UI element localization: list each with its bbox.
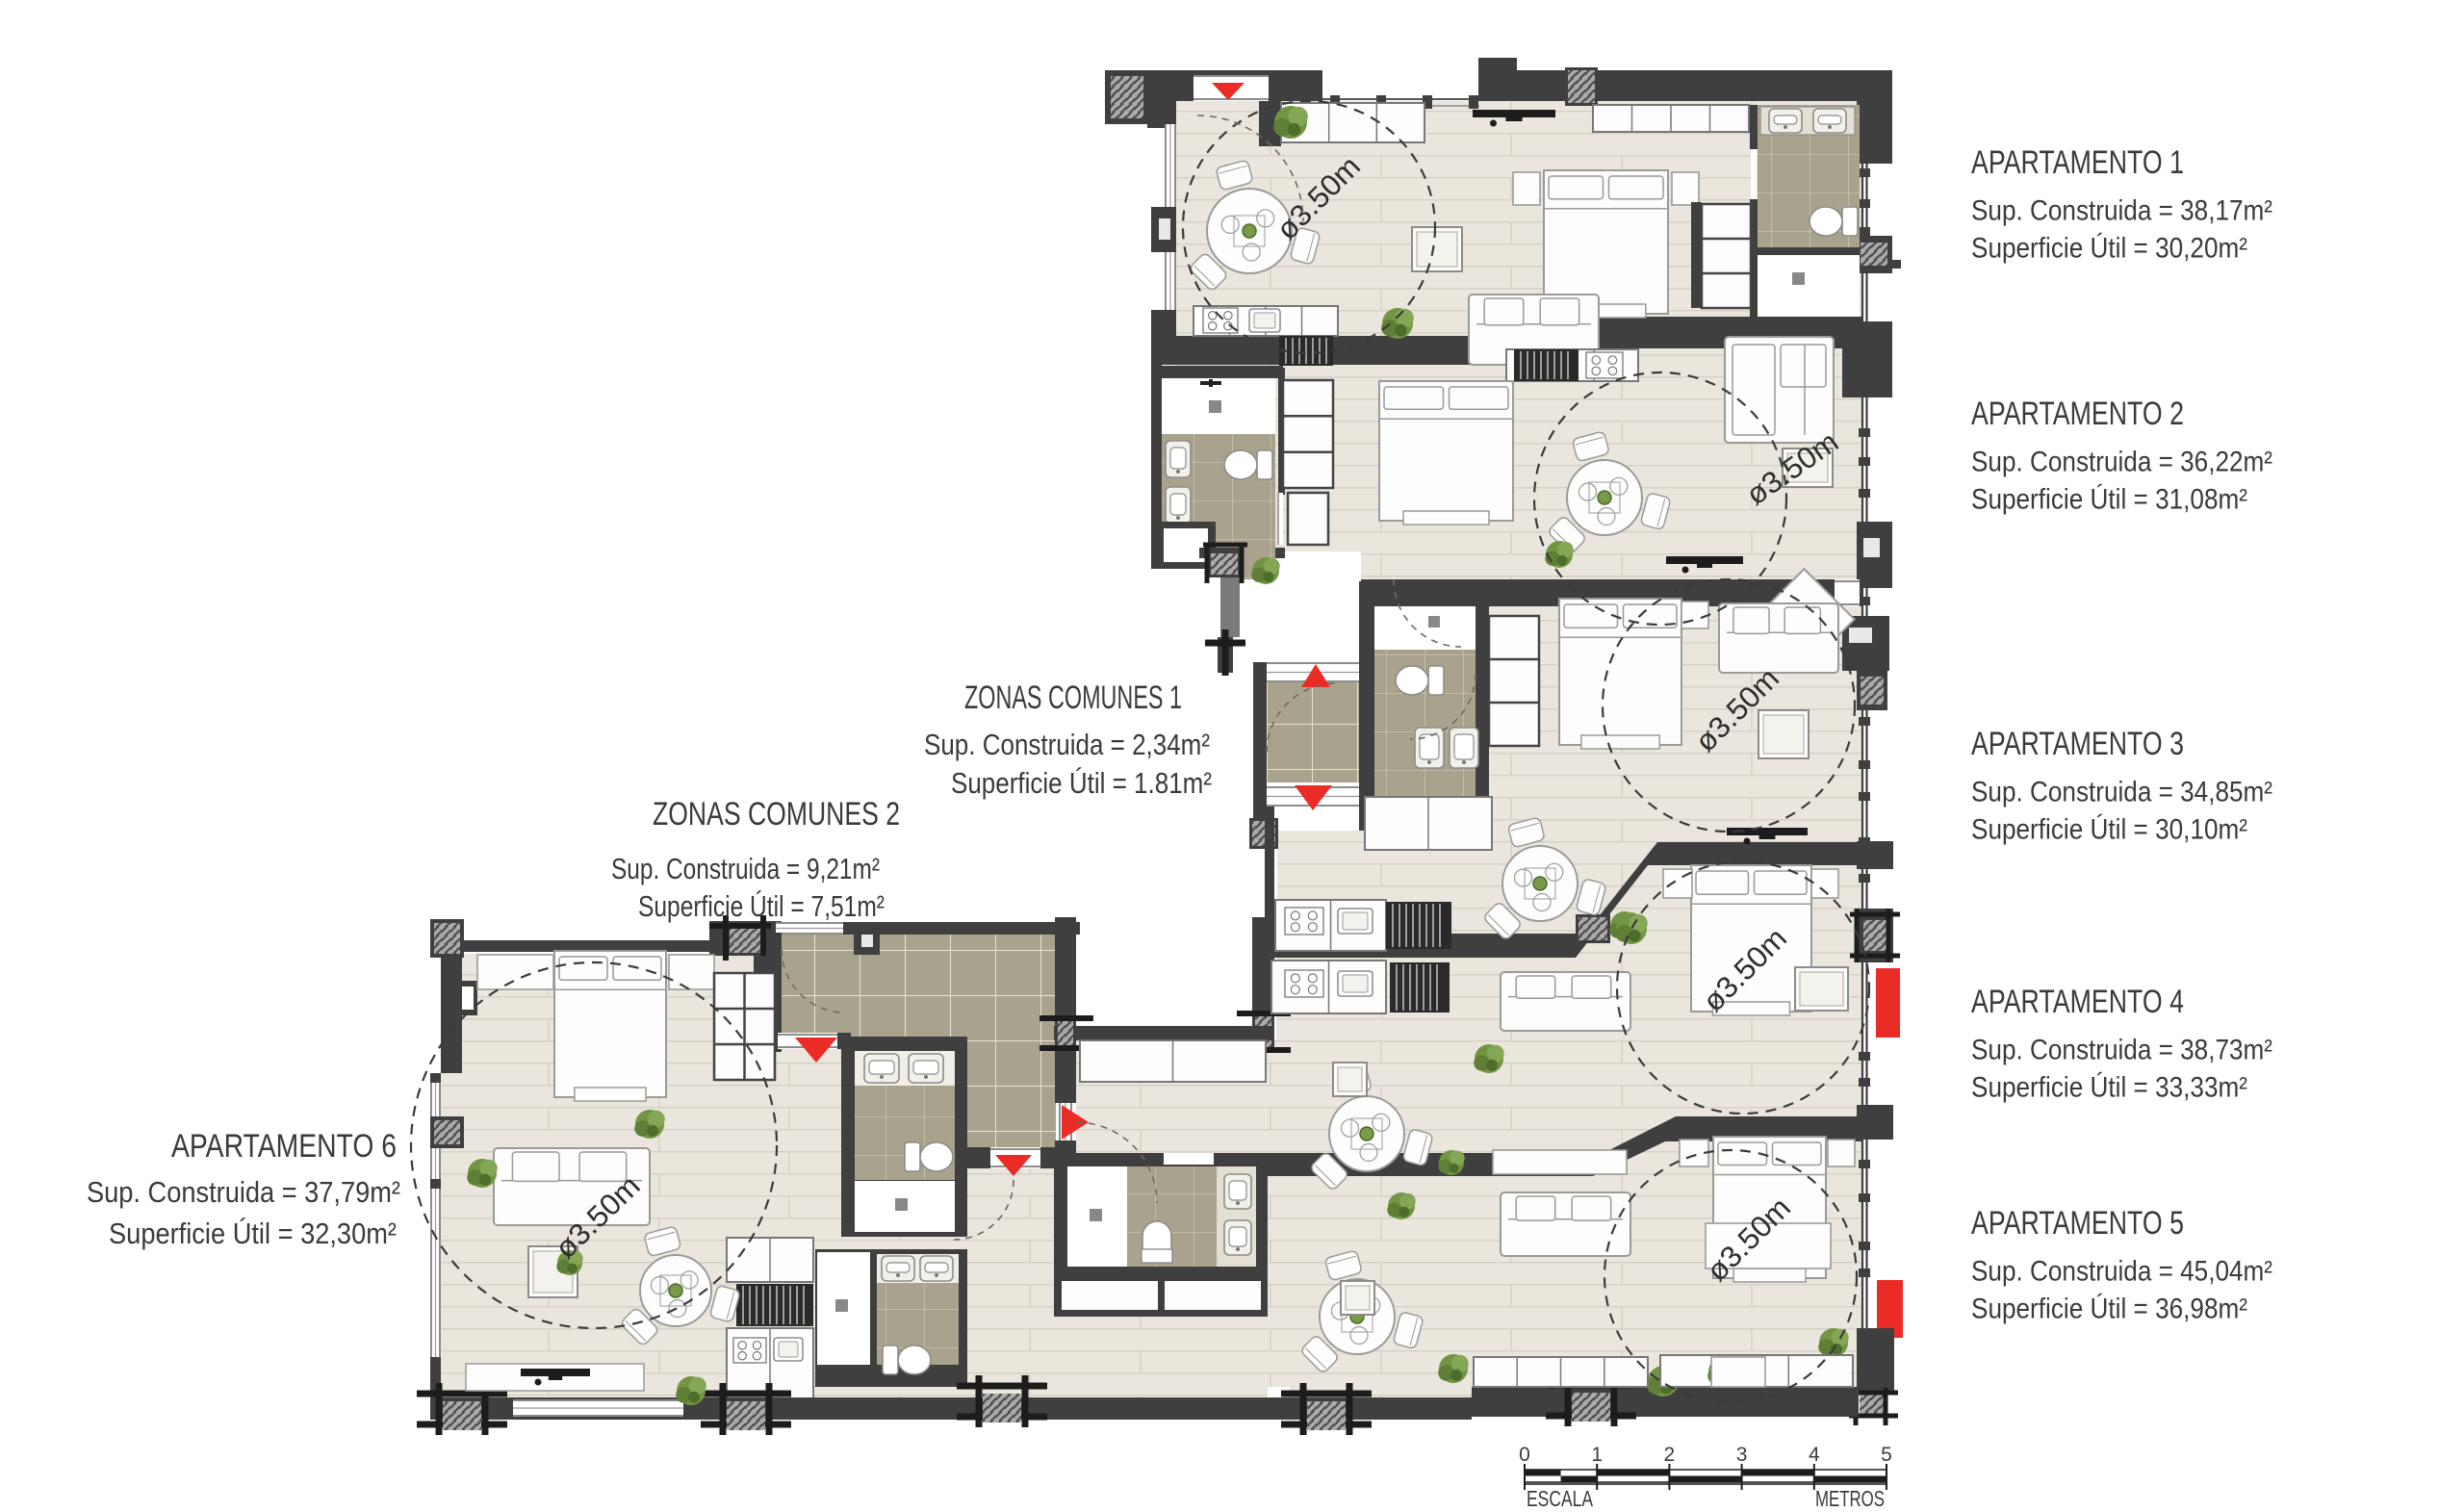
svg-text:3: 3 [1736,1444,1748,1466]
svg-text:APARTAMENTO 3: APARTAMENTO 3 [1971,726,2184,762]
svg-text:Sup. Construida = 34,85m²: Sup. Construida = 34,85m² [1971,777,2272,808]
svg-text:APARTAMENTO 2: APARTAMENTO 2 [1971,396,2184,432]
svg-text:Superficie Útil = 30,20m²: Superficie Útil = 30,20m² [1971,233,2247,265]
svg-text:ZONAS COMUNES 2: ZONAS COMUNES 2 [653,796,900,833]
svg-text:Sup. Construida = 38,17m²: Sup. Construida = 38,17m² [1971,195,2272,227]
svg-text:Superficie Útil = 32,30m²: Superficie Útil = 32,30m² [109,1217,397,1250]
svg-text:ESCALA: ESCALA [1527,1486,1594,1511]
svg-text:Sup. Construida = 9,21m²: Sup. Construida = 9,21m² [611,852,880,885]
svg-text:5: 5 [1881,1444,1892,1466]
svg-text:Superficie Útil = 33,33m²: Superficie Útil = 33,33m² [1971,1072,2247,1104]
svg-text:2: 2 [1664,1444,1676,1466]
svg-text:Sup. Construida = 2,34m²: Sup. Construida = 2,34m² [924,728,1210,761]
svg-text:0: 0 [1519,1444,1530,1466]
svg-text:Sup. Construida = 45,04m²: Sup. Construida = 45,04m² [1971,1256,2272,1288]
svg-text:APARTAMENTO 5: APARTAMENTO 5 [1971,1205,2184,1242]
svg-text:APARTAMENTO 6: APARTAMENTO 6 [171,1128,397,1165]
svg-text:4: 4 [1809,1444,1820,1466]
svg-text:Superficie Útil = 7,51m²: Superficie Útil = 7,51m² [638,889,885,923]
svg-text:APARTAMENTO 1: APARTAMENTO 1 [1971,144,2184,181]
svg-text:Superficie Útil = 31,08m²: Superficie Útil = 31,08m² [1971,484,2247,516]
svg-text:Superficie Útil = 36,98m²: Superficie Útil = 36,98m² [1971,1294,2247,1325]
svg-text:ZONAS COMUNES 1: ZONAS COMUNES 1 [964,679,1182,716]
svg-text:Sup. Construida = 37,79m²: Sup. Construida = 37,79m² [87,1175,400,1209]
svg-text:Sup. Construida = 38,73m²: Sup. Construida = 38,73m² [1971,1035,2272,1066]
svg-text:Superficie Útil = 30,10m²: Superficie Útil = 30,10m² [1971,814,2247,846]
svg-text:APARTAMENTO 4: APARTAMENTO 4 [1971,984,2184,1020]
svg-text:1: 1 [1591,1444,1603,1466]
svg-text:METROS: METROS [1815,1486,1885,1511]
svg-text:Superficie Útil = 1.81m²: Superficie Útil = 1.81m² [951,766,1212,800]
svg-text:Sup. Construida = 36,22m²: Sup. Construida = 36,22m² [1971,447,2272,478]
